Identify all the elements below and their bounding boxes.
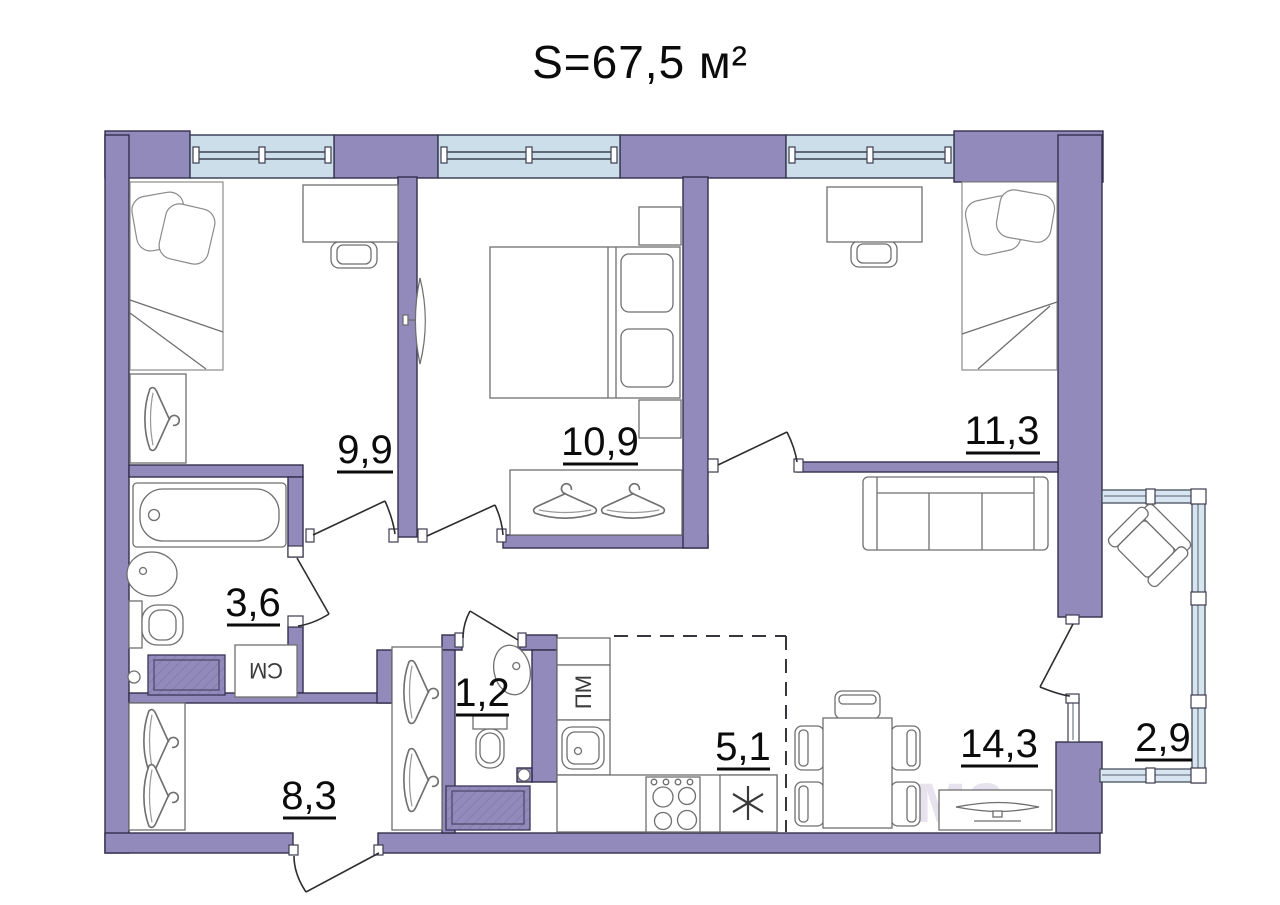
window-icon	[190, 135, 334, 178]
room-area-value: 5,1	[715, 725, 771, 769]
chair-icon	[891, 782, 920, 826]
dishwasher-label: ПМ	[571, 675, 596, 709]
door-wc	[455, 611, 526, 647]
chair-icon	[835, 691, 880, 719]
floor-plan-page: S=67,5 м² ма 486	[0, 0, 1280, 905]
room-label-bathroom: 3,6	[225, 581, 281, 625]
balcony-armchair	[1106, 500, 1195, 589]
bedroom2-furniture	[403, 207, 682, 535]
cabinet-icon	[148, 655, 225, 695]
bedroom1-furniture	[130, 182, 398, 463]
chair-icon	[795, 782, 824, 826]
room-area-value: 11,3	[965, 409, 1040, 453]
room-label-wc: 1,2	[454, 671, 510, 715]
bed-icon	[962, 182, 1057, 370]
room-area-value: 1,2	[454, 671, 510, 715]
plan-title: S=67,5 м²	[532, 36, 748, 88]
double-bed-icon	[490, 247, 680, 398]
room-area-value: 2,9	[1135, 716, 1191, 760]
door-stop-icon	[518, 769, 530, 781]
washing-machine-label: СМ	[249, 658, 283, 683]
floor-plan-drawing: S=67,5 м² ма 486	[0, 0, 1280, 905]
window-icon	[438, 135, 620, 178]
door-balcony	[1040, 615, 1079, 703]
bathtub-icon	[133, 483, 286, 547]
closet-icon	[510, 470, 682, 535]
room-area-value: 10,9	[561, 420, 639, 464]
chair-icon	[891, 726, 920, 770]
door-bathroom	[288, 546, 329, 627]
kitchen-sink-icon	[557, 720, 610, 775]
tv-stand-icon	[939, 790, 1052, 830]
room-label-bedroom3: 11,3	[965, 409, 1040, 453]
facade-windows	[190, 135, 954, 178]
room-label-bedroom2: 10,9	[561, 420, 639, 464]
dining-table-icon	[823, 718, 892, 828]
room-label-bedroom1: 9,9	[337, 428, 393, 472]
window-icon	[1068, 698, 1079, 742]
room-label-balcony: 2,9	[1135, 716, 1192, 760]
wardrobe-icon	[130, 374, 186, 463]
room-label-living: 14,3	[960, 722, 1038, 766]
sink-icon	[127, 552, 177, 596]
room-label-kitchen: 5,1	[715, 725, 771, 769]
bed-icon	[130, 182, 223, 370]
door-bedroom2	[418, 505, 506, 542]
desk-icon	[827, 187, 922, 267]
room-label-hallway: 8,3	[281, 774, 337, 818]
door-stop-icon	[128, 671, 140, 683]
coat-rack-icon	[129, 703, 185, 830]
stove-icon	[646, 777, 700, 832]
dishwasher-box: ПМ	[557, 665, 610, 720]
nightstand-icon	[639, 400, 681, 438]
door-bedroom3	[708, 432, 803, 472]
door-entrance	[289, 845, 383, 892]
toilet-icon	[473, 716, 507, 768]
room-area-value: 14,3	[960, 722, 1038, 766]
room-area-value: 9,9	[337, 428, 393, 472]
window-icon	[786, 135, 954, 178]
bedroom3-furniture	[827, 182, 1057, 370]
counter-icon	[557, 638, 610, 665]
desk-icon	[303, 185, 398, 268]
washing-machine-box: СМ	[235, 645, 297, 697]
dining-set-icon	[795, 691, 920, 828]
room-area-value: 3,6	[225, 581, 281, 625]
fridge-icon	[720, 775, 777, 832]
coat-rack-icon	[392, 647, 442, 830]
door-bedroom1	[306, 501, 398, 542]
cabinet-icon	[446, 786, 530, 830]
toilet-icon	[129, 601, 183, 648]
sofa-icon	[863, 477, 1048, 550]
room-area-value: 8,3	[281, 774, 337, 818]
chair-icon	[795, 726, 824, 770]
nightstand-icon	[639, 207, 681, 245]
